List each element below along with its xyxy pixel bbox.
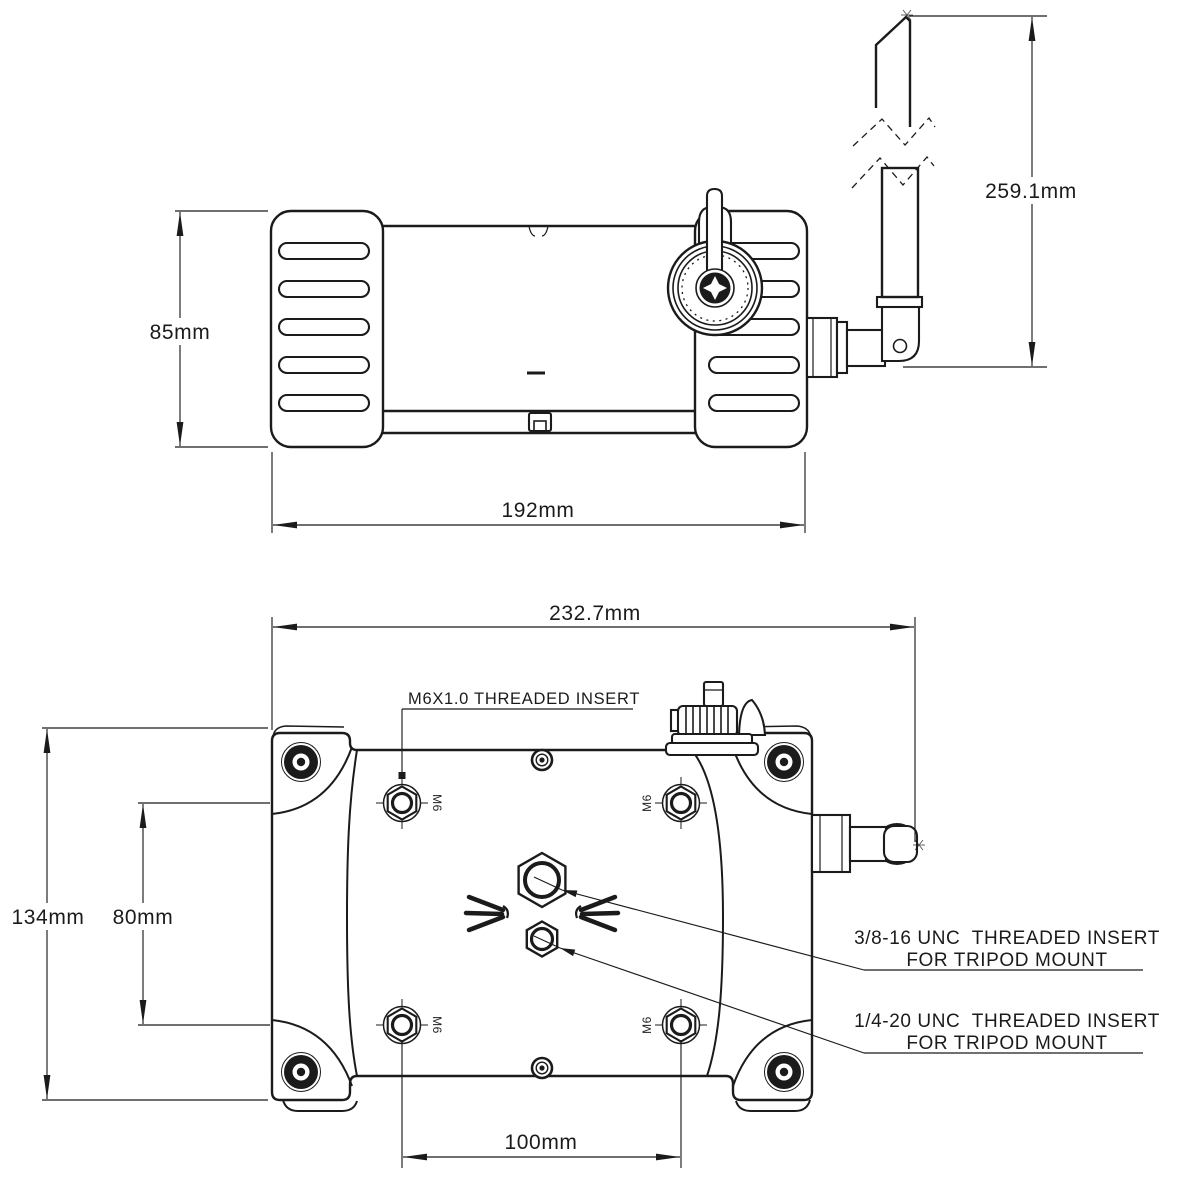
dim-85mm: 85mm [146, 211, 268, 447]
center-screw-top [532, 750, 552, 770]
dimension-drawing: 85mm 192mm 259.1mm [0, 0, 1181, 1189]
dim-192mm: 192mm [272, 452, 805, 533]
callout-tripod-14-line1: 1/4-20 UNC THREADED INSERT [854, 1011, 1160, 1032]
sma-connector-side [807, 318, 885, 377]
bottom-clip [529, 413, 551, 431]
tripod-insert-3-8 [519, 853, 566, 907]
dim-259mm-text: 259.1mm [985, 180, 1077, 203]
dim-134mm-text: 134mm [11, 906, 84, 929]
dim-259mm: 259.1mm [903, 16, 1078, 367]
callout-m6-text: M6X1.0 THREADED INSERT [408, 690, 640, 708]
tripod-insert-1-4 [527, 922, 557, 957]
dim-80mm: 80mm [109, 803, 270, 1025]
corner-screw [282, 743, 321, 782]
rubber-feet [283, 1100, 810, 1111]
side-view: 85mm 192mm 259.1mm [146, 10, 1078, 533]
antenna-hinge-ring [877, 297, 922, 307]
top-notch [529, 226, 548, 236]
bottom-view: M6 M6 M6 M6 [11, 602, 1160, 1168]
locking-lever [707, 189, 722, 282]
m6-marking: M6 [430, 794, 444, 812]
m6-marking: M6 [430, 1016, 444, 1034]
corner-screw [765, 1053, 804, 1092]
dim-100mm-text: 100mm [504, 1131, 577, 1154]
callout-tripod-38-line1: 3/8-16 UNC THREADED INSERT [854, 928, 1160, 949]
antenna-lower-section [882, 168, 918, 297]
phillips-screw-icon [696, 269, 734, 307]
device-body-side [383, 226, 699, 433]
antenna-upper-section [876, 17, 910, 127]
dim-192mm-text: 192mm [501, 499, 574, 522]
dim-85mm-text: 85mm [150, 321, 211, 344]
corner-screw [282, 1053, 321, 1092]
antenna-assembly [852, 10, 935, 361]
corner-screw [765, 743, 804, 782]
center-screw-bottom [532, 1058, 552, 1078]
m6-marking: M6 [640, 1016, 654, 1034]
m6-marking: M6 [640, 794, 654, 812]
dim-232mm-text: 232.7mm [549, 602, 641, 625]
knob-ribs [686, 706, 728, 736]
callout-tripod-38-line2: FOR TRIPOD MOUNT [906, 950, 1107, 971]
left-end-cap [271, 211, 383, 447]
dim-80mm-text: 80mm [113, 906, 174, 929]
technical-drawing-page: 85mm 192mm 259.1mm [0, 0, 1181, 1189]
callout-tripod-14-line2: FOR TRIPOD MOUNT [906, 1033, 1107, 1054]
knob-fin [739, 700, 765, 735]
thumbscrew-knob [666, 682, 765, 755]
sma-connector-bottom [812, 815, 925, 872]
